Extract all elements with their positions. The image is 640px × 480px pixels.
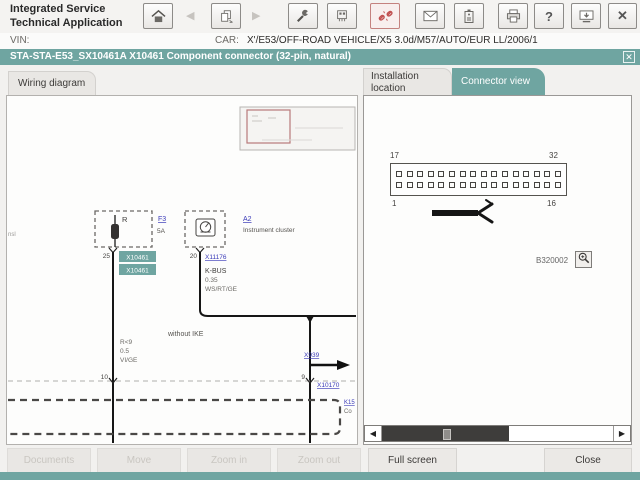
move-button-label: Move xyxy=(127,455,151,466)
scrollbar-track[interactable] xyxy=(382,426,613,441)
clipped-edge-text: nsl xyxy=(8,232,16,238)
home-icon xyxy=(151,9,166,23)
envelope-icon xyxy=(423,10,438,22)
pin-chevron xyxy=(109,248,117,253)
fullscreen-toggle-button[interactable] xyxy=(571,3,601,29)
scroll-left-icon: ◀ xyxy=(370,429,376,438)
zoom-in-button[interactable]: Zoom in xyxy=(187,448,271,473)
tab-installation-label-line2: location xyxy=(371,83,451,95)
help-icon: ? xyxy=(545,9,553,24)
component-clipped-text: Co xyxy=(344,409,352,415)
scrollbar-thumb[interactable] xyxy=(382,426,509,441)
wrench-icon xyxy=(296,9,310,23)
connector-orientation-graphic xyxy=(363,95,632,445)
scrollbar-left-button[interactable]: ◀ xyxy=(365,426,382,441)
pin-number-10: 10 xyxy=(101,374,109,381)
orientation-pointer xyxy=(432,210,478,216)
battery-status-button[interactable] xyxy=(454,3,484,29)
wiring-diagram: nsl R F3 5A A2 Instrument cluster 25 20 … xyxy=(6,95,358,445)
mail-button[interactable] xyxy=(415,3,445,29)
app-title-line1: Integrated Service xyxy=(10,3,122,17)
measurement-device-button[interactable] xyxy=(327,3,357,29)
settings-button[interactable] xyxy=(288,3,318,29)
wire-code: R<9 xyxy=(120,339,132,346)
close-icon: ✕ xyxy=(617,8,628,24)
variant-note: without IKE xyxy=(167,331,204,338)
print-button[interactable] xyxy=(498,3,528,29)
monitor-icon xyxy=(579,10,594,23)
documents-switch-button[interactable] xyxy=(211,3,241,29)
zoom-out-button-label: Zoom out xyxy=(298,455,340,466)
fuse-link[interactable]: F3 xyxy=(158,216,166,223)
tab-connector-view[interactable]: Connector view xyxy=(452,68,545,96)
close-button[interactable]: Close xyxy=(544,448,632,473)
zoom-image-button[interactable] xyxy=(575,251,592,268)
connector-tag-2[interactable]: X10461 xyxy=(126,268,149,275)
fuse-rating: 5A xyxy=(157,228,166,235)
component-link-k15[interactable]: K15 xyxy=(344,400,355,406)
connector-view-scrollbar: ◀ ▶ xyxy=(364,425,631,442)
bus-cross-section: 0.35 xyxy=(205,277,218,284)
tab-connector-view-label: Connector view xyxy=(461,76,530,87)
app-title-line2: Technical Application xyxy=(10,17,122,31)
scrollbar-right-button[interactable]: ▶ xyxy=(613,426,630,441)
zoom-out-button[interactable]: Zoom out xyxy=(277,448,361,473)
connection-broken-button[interactable] xyxy=(370,3,400,29)
tab-wiring-diagram-label: Wiring diagram xyxy=(18,78,85,89)
battery-icon xyxy=(464,9,474,23)
pin-chevron xyxy=(196,248,204,253)
cluster-name: Instrument cluster xyxy=(243,227,295,234)
wire-cross-section: 0.5 xyxy=(120,348,129,355)
ista-window: Integrated Service Technical Application… xyxy=(0,0,640,480)
connector-link-x939[interactable]: X939 xyxy=(304,352,320,359)
figure-id: B320002 xyxy=(536,256,568,265)
documents-button-label: Documents xyxy=(24,455,75,466)
pin-number-25: 25 xyxy=(103,253,111,260)
dialog-title-bar: STA-STA-E53_SX10461A X10461 Component co… xyxy=(0,49,640,65)
wire-color: VI/GE xyxy=(120,357,138,364)
tab-installation-label-line1: Installation xyxy=(371,71,451,83)
app-title: Integrated Service Technical Application xyxy=(10,3,122,31)
document-pages-icon xyxy=(219,9,233,23)
pin-number-20: 20 xyxy=(190,253,198,260)
tab-wiring-diagram[interactable]: Wiring diagram xyxy=(8,71,96,96)
fuse-symbol xyxy=(111,224,119,239)
printer-icon xyxy=(506,9,521,23)
car-label: CAR: xyxy=(215,35,239,46)
documents-button[interactable]: Documents xyxy=(7,448,91,473)
bus-name: K-BUS xyxy=(205,268,227,275)
forward-icon[interactable]: ▶ xyxy=(252,9,260,22)
device-icon xyxy=(335,9,349,23)
back-icon[interactable]: ◀ xyxy=(186,9,194,22)
bus-wire-color: WS/RT/GE xyxy=(205,286,238,293)
broken-link-icon xyxy=(378,9,393,23)
vin-label: VIN: xyxy=(10,35,29,46)
car-value: X'/E53/OFF-ROAD VEHICLE/X5 3.0d/M57/AUTO… xyxy=(247,35,538,46)
vehicle-info-bar: VIN: CAR: X'/E53/OFF-ROAD VEHICLE/X5 3.0… xyxy=(0,33,640,49)
dialog-close-icon[interactable]: ✕ xyxy=(623,51,635,63)
app-close-button[interactable]: ✕ xyxy=(608,3,637,29)
close-button-label: Close xyxy=(575,455,601,466)
move-button[interactable]: Move xyxy=(97,448,181,473)
home-button[interactable] xyxy=(143,3,173,29)
help-button[interactable]: ? xyxy=(534,3,564,29)
wire-kbus xyxy=(200,252,356,316)
connector-tag-1[interactable]: X10461 xyxy=(126,255,149,262)
connector-link-x11176[interactable]: X11176 xyxy=(205,254,227,261)
scrollbar-thumb-grip xyxy=(443,429,451,440)
magnifier-icon xyxy=(578,251,590,269)
pin-number-9: 9 xyxy=(301,374,305,381)
scroll-right-icon: ▶ xyxy=(619,429,625,438)
status-strip xyxy=(0,472,640,480)
full-screen-button-label: Full screen xyxy=(388,455,437,466)
junction-arrow xyxy=(306,316,314,323)
zoom-in-button-label: Zoom in xyxy=(211,455,247,466)
full-screen-button[interactable]: Full screen xyxy=(368,448,457,473)
tab-installation-location[interactable]: Installation location xyxy=(363,68,452,96)
cluster-link[interactable]: A2 xyxy=(243,216,252,223)
app-header: Integrated Service Technical Application… xyxy=(0,0,640,33)
dialog-title: STA-STA-E53_SX10461A X10461 Component co… xyxy=(10,51,351,62)
relay-label: R xyxy=(122,215,128,224)
connector-link-x10170[interactable]: X10170 xyxy=(317,382,340,389)
component-boundary-box xyxy=(8,400,340,434)
